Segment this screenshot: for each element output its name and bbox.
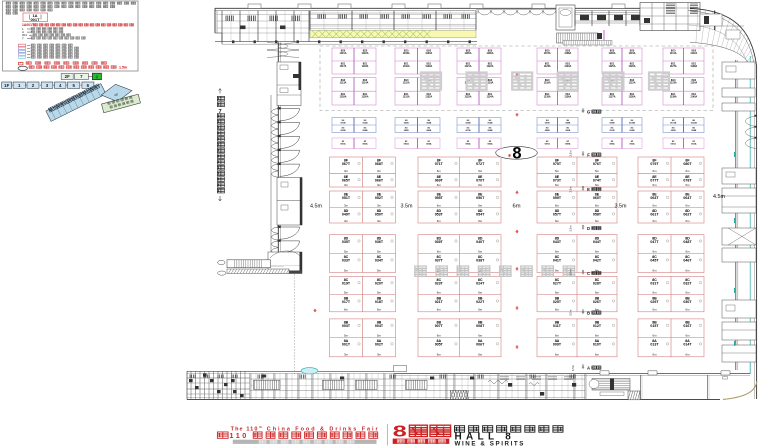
svg-text:038T: 038T (476, 259, 485, 263)
svg-text:062T: 062T (683, 213, 692, 217)
svg-text:048T: 048T (683, 240, 692, 244)
svg-text:C: C (587, 271, 590, 276)
svg-text:091A: 091A (671, 143, 677, 146)
svg-text:1106A: 1106A (487, 52, 494, 55)
svg-text:088A: 088A (565, 143, 571, 146)
svg-text:0100B: 0100B (629, 122, 636, 124)
svg-text:E: E (587, 187, 590, 192)
svg-text:017T: 017T (342, 300, 351, 304)
svg-text:8: 8 (393, 423, 407, 440)
svg-text:6m: 6m (437, 219, 442, 223)
svg-text:056T: 056T (476, 196, 485, 200)
svg-text:8: 8 (96, 74, 99, 79)
svg-text:6m: 6m (685, 183, 690, 187)
svg-text:013T: 013T (650, 343, 659, 347)
svg-text:3,5m: 3,5m (569, 309, 573, 316)
svg-text:068T: 068T (375, 162, 384, 166)
svg-text:5m: 5m (377, 333, 382, 337)
svg-text:037T: 037T (435, 259, 444, 263)
svg-text:008T: 008T (476, 324, 485, 328)
svg-text:031T: 031T (650, 282, 659, 286)
svg-text:6m: 6m (652, 183, 657, 187)
svg-text:1123A: 1123A (544, 65, 551, 68)
svg-text:WINE & SPIRITS: WINE & SPIRITS (455, 440, 526, 446)
svg-text:6m: 6m (595, 249, 600, 253)
svg-text:1125A: 1125A (609, 65, 616, 68)
svg-text:004T: 004T (375, 324, 384, 328)
svg-text:096B: 096B (488, 122, 493, 124)
svg-text:5m: 5m (344, 268, 349, 272)
svg-text:1102A: 1102A (362, 52, 369, 55)
svg-text:6m: 6m (478, 353, 483, 357)
svg-text:1109A: 1109A (609, 52, 616, 55)
svg-text:005T: 005T (435, 343, 444, 347)
svg-text:1129A: 1129A (340, 95, 347, 98)
svg-text:093B: 093B (404, 122, 409, 124)
svg-text:092B: 092B (630, 130, 635, 132)
svg-text:6m: 6m (555, 333, 560, 337)
svg-text:001T: 001T (342, 343, 351, 347)
svg-text:083B: 083B (341, 130, 346, 132)
svg-text:1105A: 1105A (465, 52, 472, 55)
svg-text:6m: 6m (478, 169, 483, 173)
svg-text:3m: 3m (377, 219, 382, 223)
svg-text:6m: 6m (685, 169, 690, 173)
svg-text:6m: 6m (437, 183, 442, 187)
svg-text:6m: 6m (652, 219, 657, 223)
svg-text:083A: 083A (404, 143, 410, 146)
svg-text:6m: 6m (595, 219, 600, 223)
svg-text:1139A: 1139A (670, 95, 677, 98)
svg-text:053T: 053T (435, 213, 444, 217)
svg-text:6m: 6m (595, 203, 600, 207)
svg-text:026T: 026T (593, 300, 602, 304)
svg-text:063T: 063T (650, 196, 659, 200)
svg-text:6m: 6m (685, 333, 690, 337)
svg-text:094B: 094B (426, 121, 431, 124)
svg-text:3m: 3m (377, 353, 382, 357)
svg-text:1137A: 1137A (609, 95, 616, 98)
svg-text:1112A: 1112A (690, 52, 697, 55)
svg-text:3m: 3m (377, 183, 382, 187)
svg-text:A: A (587, 365, 590, 370)
svg-text:6m: 6m (478, 290, 483, 294)
svg-text:010T: 010T (593, 343, 602, 347)
svg-text:6m: 6m (595, 353, 600, 357)
svg-text:1118A: 1118A (362, 65, 369, 68)
svg-text:5m: 5m (344, 249, 349, 253)
svg-text:1111A: 1111A (670, 52, 677, 55)
svg-text:057T: 057T (553, 213, 562, 217)
svg-text:084A: 084A (426, 143, 432, 146)
svg-text:1108A: 1108A (564, 52, 571, 55)
svg-text:4.5m: 4.5m (310, 203, 322, 209)
svg-text:1132A: 1132A (425, 95, 432, 98)
svg-text:086A: 086A (487, 143, 493, 146)
svg-text:6m: 6m (437, 169, 442, 173)
svg-text:044T: 044T (593, 240, 602, 244)
svg-text:th: th (259, 425, 262, 429)
svg-text:023T: 023T (435, 282, 444, 286)
svg-text:033T: 033T (342, 259, 351, 263)
svg-text:1F: 1F (4, 83, 9, 88)
svg-text:3m: 3m (377, 169, 382, 173)
svg-text:6m: 6m (595, 169, 600, 173)
svg-text:007T: 007T (435, 324, 444, 328)
svg-text:034T: 034T (375, 259, 384, 263)
svg-text:6m: 6m (595, 333, 600, 337)
svg-text:1130A: 1130A (362, 95, 369, 98)
svg-text:1131A: 1131A (403, 95, 410, 98)
svg-text:093B: 093B (671, 130, 676, 132)
svg-text:3m: 3m (344, 183, 349, 187)
svg-text:G: G (587, 109, 590, 114)
svg-text:055T: 055T (435, 196, 444, 200)
svg-text:6m: 6m (652, 249, 657, 253)
svg-text:1107A: 1107A (544, 52, 551, 55)
svg-text:097B: 097B (545, 122, 550, 124)
svg-text:082A: 082A (362, 143, 368, 146)
svg-text:072T: 072T (476, 162, 485, 166)
svg-text:045T: 045T (650, 259, 659, 263)
svg-text:088B: 088B (488, 130, 493, 132)
svg-text:6m: 6m (652, 290, 657, 294)
svg-text:080T: 080T (683, 162, 692, 166)
svg-text:1110A: 1110A (629, 52, 636, 55)
svg-text:6m: 6m (685, 308, 690, 312)
svg-text:6m: 6m (512, 204, 520, 210)
svg-text:1121A: 1121A (465, 65, 472, 68)
svg-text:6m: 6m (555, 268, 560, 272)
svg-text:1127A: 1127A (670, 65, 677, 68)
svg-text:041T: 041T (553, 259, 562, 263)
svg-text:6m: 6m (437, 249, 442, 253)
svg-text:6m: 6m (555, 249, 560, 253)
svg-text:012T: 012T (593, 324, 602, 328)
svg-text:030T: 030T (683, 300, 692, 304)
svg-text:6m: 6m (652, 333, 657, 337)
svg-text:6m: 6m (685, 249, 690, 253)
svg-text:015T: 015T (650, 324, 659, 328)
svg-text:6m: 6m (478, 183, 483, 187)
svg-text:1113A: 1113A (340, 82, 347, 85)
svg-text:2F: 2F (65, 74, 70, 79)
svg-text:D: D (587, 226, 590, 231)
svg-text:110: 110 (230, 431, 249, 440)
svg-text:6m: 6m (478, 333, 483, 337)
svg-text:1124A: 1124A (690, 82, 697, 85)
svg-text:6m: 6m (478, 203, 483, 207)
svg-text:054T: 054T (476, 213, 485, 217)
svg-text:084B: 084B (363, 129, 368, 132)
svg-text:3m: 3m (377, 203, 382, 207)
svg-text:090B: 090B (565, 130, 570, 132)
svg-text:6,5m: 6,5m (571, 364, 575, 371)
svg-text:6m: 6m (555, 183, 560, 187)
svg-text:1119A: 1119A (544, 82, 551, 85)
svg-text:019T: 019T (342, 282, 351, 286)
svg-text:075T: 075T (553, 162, 562, 166)
svg-text:1104A: 1104A (425, 52, 432, 55)
svg-text:6m: 6m (437, 290, 442, 294)
svg-text:028T: 028T (593, 282, 602, 286)
svg-text:003T: 003T (342, 324, 351, 328)
svg-text:1A001T: 1A001T (22, 23, 35, 27)
svg-text:6m: 6m (555, 353, 560, 357)
svg-text:1101A: 1101A (340, 52, 347, 55)
svg-text:1128A: 1128A (690, 65, 697, 68)
svg-text:032T: 032T (683, 282, 692, 286)
svg-text:6m: 6m (377, 308, 382, 312)
svg-text:6m: 6m (685, 290, 690, 294)
svg-text:098B: 098B (565, 122, 570, 124)
svg-text:3,5m: 3,5m (569, 269, 573, 276)
svg-text:F: F (587, 152, 590, 157)
svg-text:1122A: 1122A (629, 82, 636, 85)
svg-text:0101B: 0101B (670, 122, 677, 124)
svg-text:B: B (587, 310, 590, 315)
svg-text:6m: 6m (595, 183, 600, 187)
svg-text:3m: 3m (344, 353, 349, 357)
svg-text:018T: 018T (375, 300, 384, 304)
svg-text:042T: 042T (593, 259, 602, 263)
svg-text:1120A: 1120A (425, 65, 432, 68)
svg-text:002T: 002T (375, 343, 384, 347)
svg-text:1119A: 1119A (403, 65, 410, 68)
svg-text:039T: 039T (435, 240, 444, 244)
svg-text:6m: 6m (652, 203, 657, 207)
svg-text:6m: 6m (437, 203, 442, 207)
svg-text:020T: 020T (375, 282, 384, 286)
svg-text:071T: 071T (435, 162, 444, 166)
svg-text:6m: 6m (685, 203, 690, 207)
svg-text:1136A: 1136A (564, 95, 571, 98)
svg-text:5m: 5m (377, 268, 382, 272)
svg-text:3.5m: 3.5m (615, 203, 627, 209)
svg-text:6m: 6m (555, 290, 560, 294)
svg-text:3,5m: 3,5m (569, 225, 573, 232)
svg-text:6m: 6m (555, 308, 560, 312)
svg-text:094B: 094B (691, 129, 696, 132)
svg-text:1140A: 1140A (690, 95, 697, 98)
svg-text:0102B: 0102B (691, 122, 698, 124)
svg-text:1114A: 1114A (362, 82, 369, 85)
svg-text:009T: 009T (553, 343, 562, 347)
svg-text:6m: 6m (555, 169, 560, 173)
svg-text:6m: 6m (685, 268, 690, 272)
svg-text:027T: 027T (553, 282, 562, 286)
svg-text:6m: 6m (344, 308, 349, 312)
svg-text:025T: 025T (553, 300, 562, 304)
svg-text:091B: 091B (341, 122, 346, 124)
svg-text:029T: 029T (650, 300, 659, 304)
svg-text:085A: 085A (465, 143, 471, 146)
svg-text:6m: 6m (478, 308, 483, 312)
svg-text:061T: 061T (650, 213, 659, 217)
svg-text:3m: 3m (344, 219, 349, 223)
svg-text:5m: 5m (344, 333, 349, 337)
svg-text:059T: 059T (553, 196, 562, 200)
svg-text:092B: 092B (363, 122, 368, 124)
svg-text:087B: 087B (466, 130, 471, 132)
svg-text:6m: 6m (478, 249, 483, 253)
svg-text:6m: 6m (437, 308, 442, 312)
svg-text:6m: 6m (652, 268, 657, 272)
svg-text:1103A: 1103A (403, 52, 410, 55)
svg-text:016T: 016T (683, 324, 692, 328)
svg-text:3,5m: 3,5m (569, 186, 573, 193)
svg-text:3m: 3m (344, 169, 349, 173)
svg-text:090A: 090A (629, 143, 635, 146)
svg-text:1117A: 1117A (340, 65, 347, 68)
svg-text:6m: 6m (652, 308, 657, 312)
svg-text:095B: 095B (466, 122, 471, 124)
svg-text:035T: 035T (342, 240, 351, 244)
svg-text:011T: 011T (553, 324, 562, 328)
svg-text:6m: 6m (437, 353, 442, 357)
svg-text:064T: 064T (683, 196, 692, 200)
svg-text:6m: 6m (652, 169, 657, 173)
svg-text:089A: 089A (609, 143, 615, 146)
svg-text:6m: 6m (555, 219, 560, 223)
svg-text:1123A: 1123A (670, 82, 677, 85)
svg-text:043T: 043T (553, 240, 562, 244)
svg-text:014T: 014T (683, 343, 692, 347)
svg-text:079T: 079T (650, 162, 659, 166)
svg-text:024T: 024T (476, 282, 485, 286)
svg-text:058T: 058T (593, 213, 602, 217)
svg-text:1133A: 1133A (465, 95, 472, 98)
svg-text:081A: 081A (340, 143, 346, 146)
svg-text:5m: 5m (344, 290, 349, 294)
svg-text:099B: 099B (610, 122, 615, 124)
svg-text:089B: 089B (545, 130, 550, 132)
svg-text:1124A: 1124A (564, 65, 571, 68)
svg-text:036T: 036T (375, 240, 384, 244)
svg-text:040T: 040T (476, 240, 485, 244)
svg-text:3m: 3m (344, 203, 349, 207)
svg-text:3.5m: 3.5m (401, 203, 413, 209)
svg-text:049T: 049T (342, 213, 351, 217)
svg-text:1126A: 1126A (629, 65, 636, 68)
svg-text:1135A: 1135A (544, 95, 551, 98)
svg-text:5m: 5m (377, 290, 382, 294)
svg-text:047T: 047T (650, 240, 659, 244)
svg-text:091B: 091B (610, 130, 615, 132)
svg-text:092A: 092A (691, 143, 697, 146)
svg-text:052T: 052T (375, 196, 384, 200)
svg-text:4.5m: 4.5m (713, 194, 725, 200)
svg-text:T: T (22, 36, 24, 40)
svg-text:046T: 046T (683, 259, 692, 263)
svg-text:6m: 6m (685, 219, 690, 223)
svg-text:001T: 001T (30, 17, 40, 22)
svg-text:1122A: 1122A (487, 65, 494, 68)
svg-text:060T: 060T (593, 196, 602, 200)
svg-text:076T: 076T (593, 162, 602, 166)
svg-text:6m: 6m (685, 353, 690, 357)
svg-text:5m: 5m (377, 249, 382, 253)
svg-text:6m: 6m (555, 203, 560, 207)
svg-text:6m: 6m (437, 333, 442, 337)
svg-text:067T: 067T (342, 162, 351, 166)
svg-text:6m: 6m (478, 219, 483, 223)
svg-text:050T: 050T (375, 213, 384, 217)
svg-text:1134A: 1134A (487, 95, 494, 98)
svg-text:086B: 086B (426, 130, 431, 132)
svg-text:6m: 6m (595, 290, 600, 294)
svg-text:8: 8 (512, 144, 521, 162)
svg-text:6m: 6m (652, 353, 657, 357)
svg-text:1.5m: 1.5m (119, 66, 127, 70)
svg-text:1138A: 1138A (629, 95, 636, 98)
svg-text:006T: 006T (476, 343, 485, 347)
svg-text:021T: 021T (435, 300, 444, 304)
svg-text:3,5m: 3,5m (569, 150, 573, 157)
svg-text:085B: 085B (404, 130, 409, 132)
svg-text:087A: 087A (545, 143, 551, 146)
svg-text:051T: 051T (342, 196, 351, 200)
svg-text:1115A: 1115A (403, 82, 410, 85)
svg-text:022T: 022T (476, 300, 485, 304)
